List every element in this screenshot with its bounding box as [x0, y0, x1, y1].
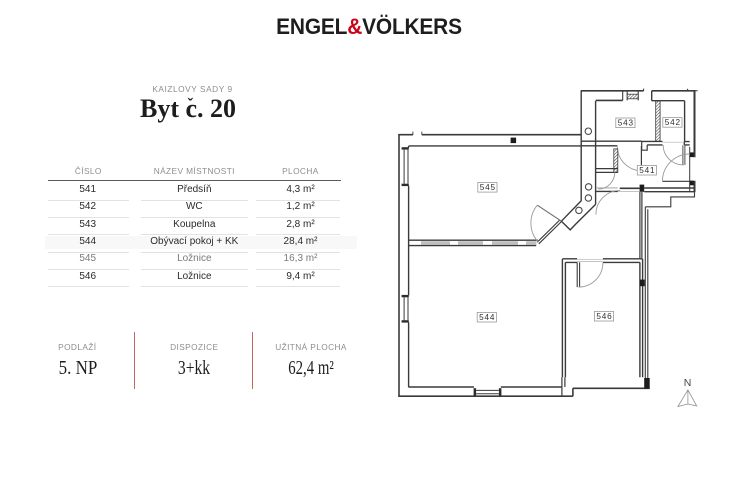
svg-text:N: N: [684, 377, 692, 389]
svg-text:544: 544: [479, 313, 495, 322]
svg-text:545: 545: [480, 183, 496, 192]
svg-text:542: 542: [665, 118, 681, 127]
svg-text:546: 546: [596, 312, 612, 321]
svg-text:541: 541: [639, 166, 655, 175]
svg-text:543: 543: [618, 119, 634, 128]
